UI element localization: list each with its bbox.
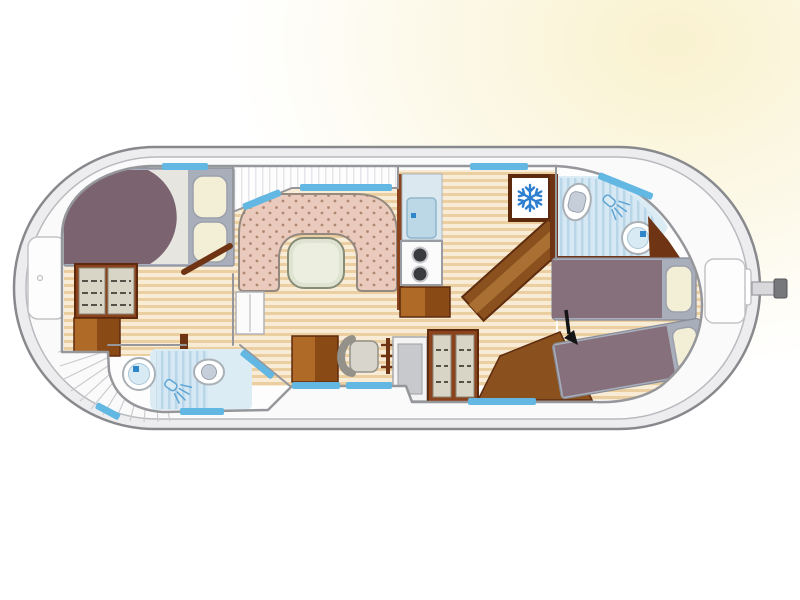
boat-floorplan-canvas xyxy=(0,0,800,600)
toilet xyxy=(194,360,224,385)
stern-locker xyxy=(705,259,745,323)
window xyxy=(468,398,536,405)
cabin-interior xyxy=(64,166,709,410)
galley-cabinet xyxy=(400,287,450,317)
boat-floorplan xyxy=(0,0,800,600)
burner xyxy=(413,267,428,282)
stern-bed-upper-duvet xyxy=(552,260,662,318)
window xyxy=(180,408,224,415)
helm-chair-seat xyxy=(350,341,378,372)
window xyxy=(470,163,528,170)
salon-table-top xyxy=(293,243,339,283)
window xyxy=(346,382,392,389)
pillow xyxy=(666,266,692,312)
bow-locker xyxy=(28,237,66,319)
salon-low-cabinet xyxy=(236,292,264,334)
stove xyxy=(401,241,442,285)
helm-cabinet xyxy=(292,336,338,382)
pillow xyxy=(193,176,227,218)
refrigerator xyxy=(510,176,550,220)
bow-cabinet xyxy=(74,318,120,356)
bow-wardrobe xyxy=(75,264,137,318)
window xyxy=(292,382,340,389)
burner xyxy=(413,248,428,263)
window xyxy=(300,184,392,191)
washbasin xyxy=(123,358,155,390)
sink xyxy=(407,198,436,238)
window xyxy=(162,163,208,170)
shelved-wardrobe xyxy=(428,330,478,402)
